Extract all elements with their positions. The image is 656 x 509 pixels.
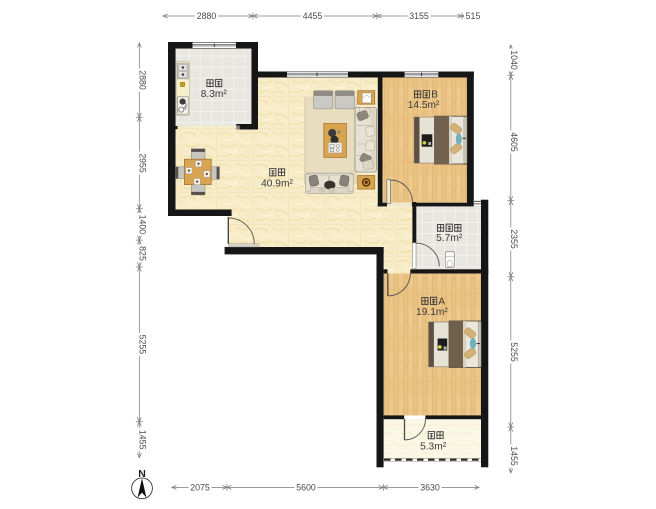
- svg-text:1400: 1400: [137, 215, 147, 235]
- svg-text:B: B: [431, 90, 438, 101]
- svg-text:4605: 4605: [509, 132, 519, 152]
- svg-text:1455: 1455: [509, 446, 519, 466]
- svg-text:3630: 3630: [420, 483, 440, 493]
- svg-text:14.5m²: 14.5m²: [408, 100, 440, 111]
- svg-text:5.7m²: 5.7m²: [436, 233, 463, 244]
- svg-text:8.3m²: 8.3m²: [201, 89, 228, 100]
- svg-text:40.9m²: 40.9m²: [261, 178, 293, 189]
- svg-text:5600: 5600: [296, 483, 316, 493]
- svg-text:515: 515: [466, 11, 481, 21]
- svg-text:N: N: [138, 468, 146, 480]
- svg-text:2955: 2955: [137, 153, 147, 173]
- svg-text:19.1m²: 19.1m²: [416, 307, 448, 318]
- svg-text:4455: 4455: [303, 11, 323, 21]
- svg-text:825: 825: [137, 246, 147, 261]
- svg-text:5255: 5255: [137, 335, 147, 355]
- svg-text:3155: 3155: [409, 11, 429, 21]
- svg-text:A: A: [438, 296, 445, 307]
- svg-text:1455: 1455: [137, 430, 147, 450]
- svg-text:2355: 2355: [509, 229, 519, 249]
- svg-text:5255: 5255: [509, 342, 519, 362]
- svg-text:1040: 1040: [509, 50, 519, 70]
- svg-text:2880: 2880: [137, 70, 147, 90]
- svg-text:2075: 2075: [190, 483, 210, 493]
- svg-text:2880: 2880: [197, 11, 217, 21]
- svg-text:5.3m²: 5.3m²: [420, 441, 447, 452]
